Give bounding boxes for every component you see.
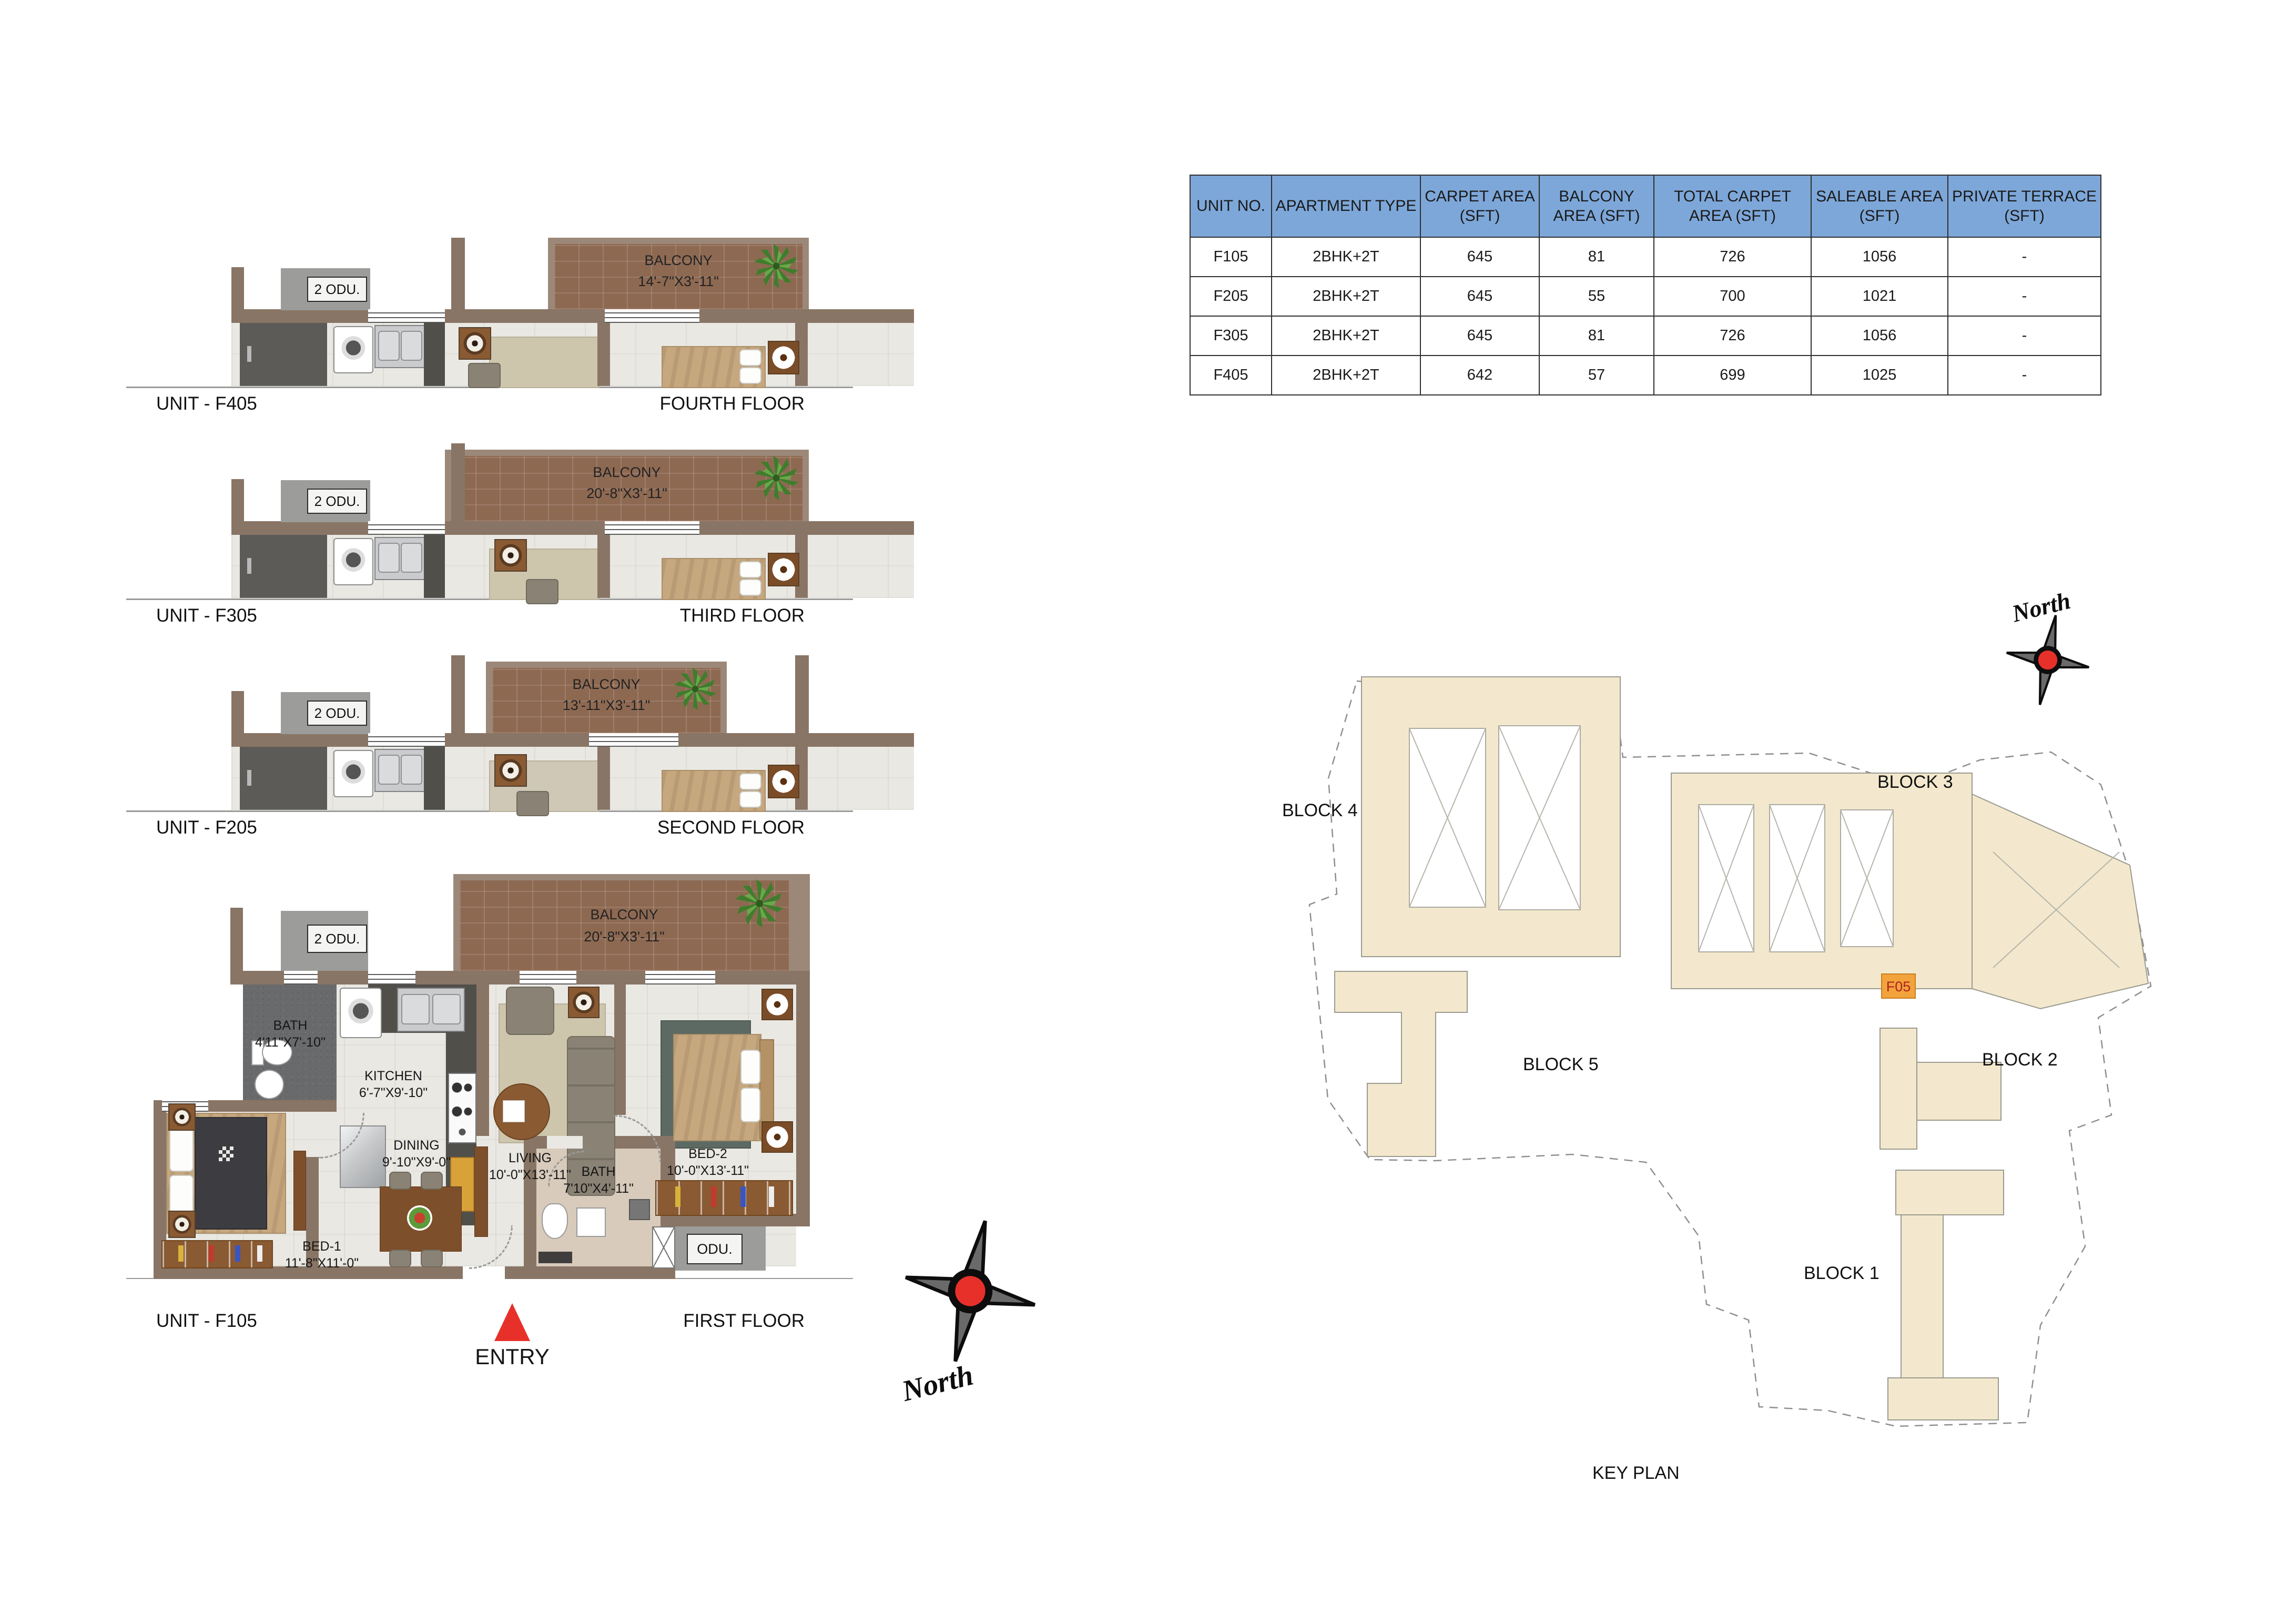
door-handle [247, 346, 251, 362]
kitchen-dims: 6'-7"X9'-10" [359, 1085, 428, 1101]
window [645, 971, 715, 984]
bed1-name: BED-1 [302, 1239, 341, 1254]
floor-label: FIRST FLOOR [652, 1311, 805, 1332]
floor-strip-f405: 2 ODU. BALCONY 14'-7"X3'-11" UNIT - F405… [126, 238, 857, 419]
odu-label: 2 ODU. [307, 701, 367, 726]
entry-hall [240, 323, 327, 386]
wall-stub [451, 443, 465, 535]
speaker-icon [459, 327, 491, 360]
cell: 699 [1654, 356, 1811, 395]
bed1-blanket [195, 1117, 267, 1230]
block-2 [1880, 1028, 2001, 1149]
cell: - [1948, 237, 2101, 277]
floor-plan-f105: BALCONY 20'-8"X3'-11" 2 ODU. BATH 4'11"X… [126, 862, 857, 1383]
window [589, 733, 678, 747]
wall-divider [597, 323, 610, 386]
nightstand [768, 553, 799, 586]
north-label: North [898, 1359, 977, 1408]
wall-stub [451, 238, 465, 323]
entry-arrow [494, 1303, 530, 1341]
north-compass-icon [1999, 608, 2097, 712]
armchair [463, 537, 508, 580]
cell: 57 [1539, 356, 1654, 395]
wall-stub [231, 691, 244, 747]
window [368, 971, 415, 984]
dining-dims: 9'-10"X9'-0" [382, 1155, 451, 1170]
key-plan: F05 BLOCK 4 BLOCK 3 BLOCK 5 BLOCK 2 BLOC… [1278, 557, 2198, 1520]
pillow [739, 791, 761, 808]
balcony: BALCONY 14'-7"X3'-11" [548, 238, 809, 309]
bath-2-dims: 7'10"X4'-11" [563, 1181, 634, 1196]
wall-divider [597, 747, 610, 810]
table-row: F305 2BHK+2T 645 81 726 1056 - [1190, 316, 2101, 356]
wall-right [796, 984, 810, 1214]
cell: - [1948, 277, 2101, 316]
wall-band [231, 309, 914, 323]
cell: F305 [1190, 316, 1272, 356]
floor-strip-f205: 2 ODU. BALCONY 13'-11"X3'-11" UNIT - F20… [126, 662, 857, 843]
balcony: BALCONY 20'-8"X3'-11" [453, 874, 810, 971]
door-handle [247, 558, 251, 574]
north-compass-icon: North [860, 1181, 1081, 1412]
entry-hall [240, 535, 327, 598]
bath-1-dims: 4'11"X7'-10" [255, 1035, 326, 1050]
kitchen-name: KITCHEN [364, 1069, 422, 1084]
key-plan-title: KEY PLAN [1592, 1463, 1680, 1483]
wall-stub [231, 479, 244, 535]
washing-machine [333, 326, 373, 373]
floor-strip-f305: 2 ODU. BALCONY 20'-8"X3'-11" UNIT - F305… [126, 450, 857, 631]
odu-label: 2 ODU. [307, 277, 367, 302]
col-header: UNIT NO. [1190, 175, 1272, 237]
plant-icon [752, 242, 800, 290]
cell: 1056 [1811, 316, 1948, 356]
washing-machine [333, 750, 373, 797]
bed1-dims: 11'-8"X11'-0" [285, 1256, 359, 1271]
living-dims: 10'-0"X13'-11" [489, 1168, 571, 1183]
cell: 726 [1654, 316, 1811, 356]
col-header: SALEABLE AREA (SFT) [1811, 175, 1948, 237]
block-1-label: BLOCK 1 [1804, 1263, 1880, 1283]
cell: 700 [1654, 277, 1811, 316]
col-header: BALCONY AREA (SFT) [1539, 175, 1654, 237]
cell: 726 [1654, 237, 1811, 277]
shower [629, 1199, 650, 1220]
wall-stub [795, 655, 809, 747]
pillow [739, 349, 761, 366]
north-label: North [2009, 587, 2073, 627]
balcony-dims: 20'-8"X3'-11" [446, 929, 802, 945]
block-1 [1888, 1170, 2004, 1420]
washing-machine [333, 538, 373, 585]
pillow [739, 561, 761, 578]
highlight-unit-label: F05 [1886, 979, 1911, 994]
dining-chair [421, 1172, 443, 1190]
unit-label: UNIT - F205 [156, 817, 257, 838]
nightstand [761, 989, 793, 1020]
wall-stub [231, 267, 244, 323]
balcony: BALCONY 13'-11"X3'-11" [486, 662, 727, 733]
plant-icon [752, 454, 800, 502]
kitchen-counter [424, 323, 445, 386]
block-5-label: BLOCK 5 [1523, 1054, 1599, 1074]
speaker-icon [168, 1211, 196, 1238]
balcony: BALCONY 20'-8"X3'-11" [445, 450, 809, 521]
cell: - [1948, 316, 2101, 356]
stove [448, 1073, 476, 1143]
kitchen-sink [374, 325, 426, 368]
block-4 [1362, 677, 1620, 957]
window [520, 971, 576, 984]
bath-1-name: BATH [273, 1018, 308, 1033]
cell: F105 [1190, 237, 1272, 277]
floor-label: FOURTH FLOOR [652, 393, 805, 414]
unit-label: UNIT - F405 [156, 393, 257, 414]
bed2-dims: 10'-0"X13'-11" [667, 1163, 749, 1179]
bath-mat [539, 1252, 572, 1263]
cell: 642 [1420, 356, 1539, 395]
wall-divider [476, 984, 489, 1136]
cell: 645 [1420, 316, 1539, 356]
wardrobe [161, 1240, 273, 1268]
pillow [740, 1088, 760, 1122]
block-3: F05 [1671, 773, 2148, 1009]
wall-band [231, 733, 914, 747]
stool [468, 363, 501, 388]
window [368, 309, 445, 323]
cell: 81 [1539, 237, 1654, 277]
cell: 81 [1539, 316, 1654, 356]
stool [526, 579, 558, 604]
odu-label: 2 ODU. [307, 925, 367, 953]
washbasin [576, 1207, 606, 1237]
kitchen-sink [374, 537, 426, 580]
speaker-icon [168, 1103, 196, 1131]
wall-divider [597, 535, 610, 598]
armchair [507, 325, 552, 368]
cell: 2BHK+2T [1272, 356, 1420, 395]
floor-label: THIRD FLOOR [652, 605, 805, 626]
wall-stub [451, 655, 465, 747]
washing-machine [340, 988, 382, 1038]
stool [516, 791, 549, 816]
cell: 2BHK+2T [1272, 316, 1420, 356]
floor-plan-sheet: 2 ODU. BALCONY 14'-7"X3'-11" UNIT - F405… [0, 0, 2296, 1624]
block-2-label: BLOCK 2 [1982, 1050, 2058, 1070]
tray [503, 1100, 525, 1122]
nightstand [761, 1121, 793, 1153]
wall-stub [230, 908, 243, 984]
cell: 2BHK+2T [1272, 277, 1420, 316]
kitchen-counter [424, 535, 445, 598]
dining-chair [389, 1172, 411, 1190]
cell: F405 [1190, 356, 1272, 395]
entry-hall [240, 747, 327, 810]
window [368, 733, 445, 747]
table-row: F105 2BHK+2T 645 81 726 1056 - [1190, 237, 2101, 277]
dining-chair [389, 1250, 411, 1267]
block-3-label: BLOCK 3 [1877, 772, 1953, 792]
tv-unit [293, 1151, 306, 1231]
cell: 55 [1539, 277, 1654, 316]
area-table: UNIT NO. APARTMENT TYPE CARPET AREA (SFT… [1190, 175, 2101, 395]
toilet [542, 1203, 568, 1239]
cell: 2BHK+2T [1272, 237, 1420, 277]
unit-label: UNIT - F105 [156, 1311, 257, 1332]
window [368, 521, 445, 535]
dining-chair [421, 1250, 443, 1267]
odu-label: 2 ODU. [307, 489, 367, 514]
nightstand [768, 765, 799, 798]
plant-icon [672, 666, 718, 712]
pillow [740, 1050, 760, 1084]
washbasin [255, 1070, 284, 1099]
armchair [506, 987, 554, 1035]
plant-icon [733, 877, 786, 930]
door-slab [474, 1146, 488, 1237]
block-4-label: BLOCK 4 [1282, 800, 1358, 820]
cell: 1056 [1811, 237, 1948, 277]
cell: 645 [1420, 237, 1539, 277]
col-header: PRIVATE TERRACE (SFT) [1948, 175, 2101, 237]
bed2-name: BED-2 [688, 1146, 727, 1162]
kitchen-sink [397, 988, 465, 1032]
chess-board [219, 1146, 233, 1161]
pillow [739, 773, 761, 790]
col-header: APARTMENT TYPE [1272, 175, 1420, 237]
cell: 1021 [1811, 277, 1948, 316]
cell: F205 [1190, 277, 1272, 316]
bath-2-name: BATH [582, 1164, 616, 1180]
wardrobe [655, 1180, 793, 1216]
cell: 645 [1420, 277, 1539, 316]
speaker-icon [568, 987, 600, 1018]
pillow [739, 579, 761, 596]
nightstand [768, 341, 799, 374]
window [605, 309, 699, 323]
kitchen-counter [424, 747, 445, 810]
unit-label: UNIT - F305 [156, 605, 257, 626]
living-name: LIVING [509, 1151, 552, 1166]
wall-band [231, 521, 914, 535]
cell: - [1948, 356, 2101, 395]
table-row: F205 2BHK+2T 645 55 700 1021 - [1190, 277, 2101, 316]
table-row: F405 2BHK+2T 642 57 699 1025 - [1190, 356, 2101, 395]
floor-label: SECOND FLOOR [652, 817, 805, 838]
window [284, 971, 318, 984]
area-table-section: UNIT NO. APARTMENT TYPE CARPET AREA (SFT… [1190, 175, 2101, 395]
door-handle [247, 770, 251, 786]
block-5 [1335, 971, 1467, 1156]
dining-name: DINING [393, 1138, 440, 1153]
col-header: CARPET AREA (SFT) [1420, 175, 1539, 237]
door-gap [547, 1136, 583, 1149]
speaker-icon [494, 754, 527, 787]
fruit-plate [407, 1205, 432, 1231]
entry-label: ENTRY [475, 1344, 550, 1369]
window [605, 521, 699, 535]
pillow [739, 367, 761, 384]
kitchen-sink [374, 749, 426, 792]
cell: 1025 [1811, 356, 1948, 395]
shaft [652, 1226, 675, 1268]
col-header: TOTAL CARPET AREA (SFT) [1654, 175, 1811, 237]
odu-label: ODU. [687, 1234, 743, 1264]
wall-divider [614, 984, 626, 1115]
